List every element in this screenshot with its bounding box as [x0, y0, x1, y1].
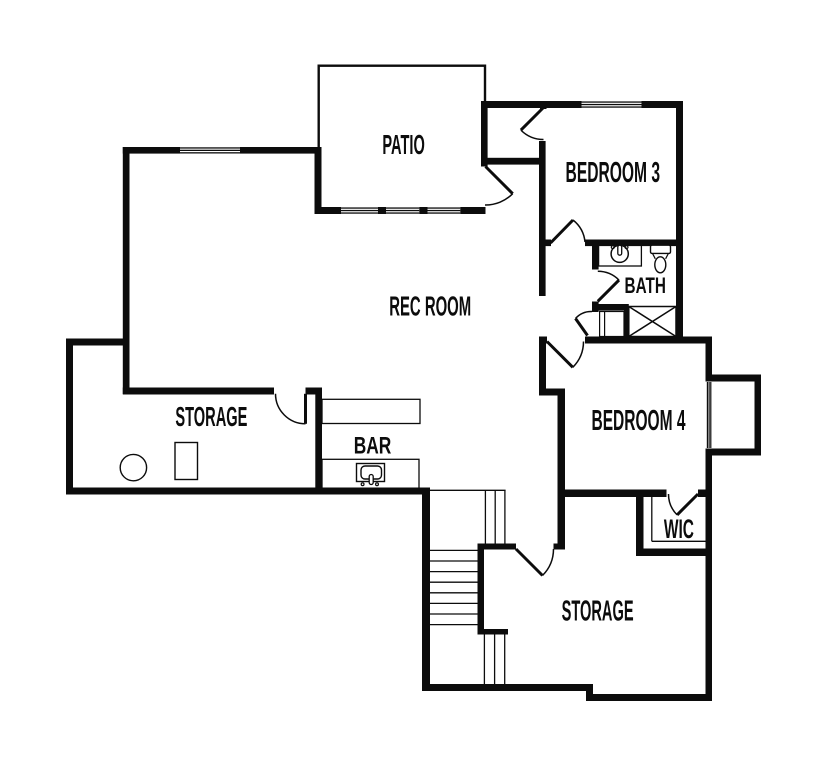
svg-text:BEDROOM 3: BEDROOM 3: [566, 157, 661, 189]
svg-text:WIC: WIC: [664, 514, 694, 544]
svg-text:STORAGE: STORAGE: [175, 400, 247, 432]
svg-text:BEDROOM 4: BEDROOM 4: [592, 405, 686, 437]
svg-text:BAR: BAR: [354, 433, 392, 460]
svg-text:BATH: BATH: [625, 273, 666, 298]
svg-text:PATIO: PATIO: [382, 129, 424, 160]
svg-text:STORAGE: STORAGE: [562, 596, 634, 628]
svg-text:REC ROOM: REC ROOM: [389, 291, 471, 322]
